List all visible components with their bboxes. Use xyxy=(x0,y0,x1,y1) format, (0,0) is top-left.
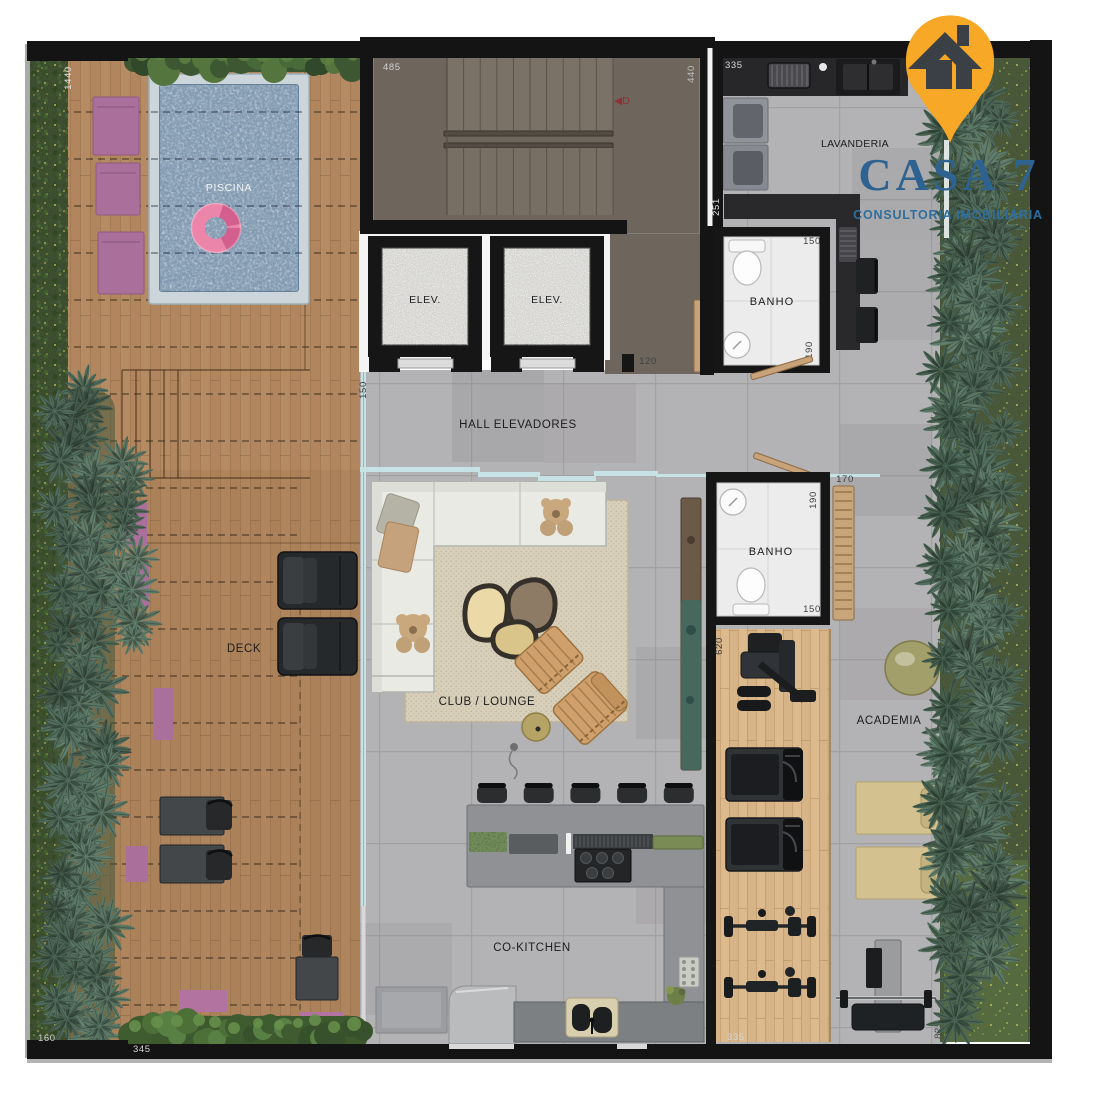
svg-text:HALL ELEVADORES: HALL ELEVADORES xyxy=(459,419,577,431)
svg-text:DECK: DECK xyxy=(227,643,261,655)
svg-text:1440: 1440 xyxy=(63,66,74,90)
svg-text:150: 150 xyxy=(803,236,821,247)
svg-text:160: 160 xyxy=(38,1033,56,1044)
svg-text:PISCINA: PISCINA xyxy=(206,182,252,194)
svg-text:485: 485 xyxy=(383,62,401,73)
svg-text:CO-KITCHEN: CO-KITCHEN xyxy=(493,942,571,954)
svg-text:CLUB / LOUNGE: CLUB / LOUNGE xyxy=(439,696,536,708)
svg-text:120: 120 xyxy=(639,356,657,367)
svg-text:440: 440 xyxy=(686,65,697,83)
svg-text:251: 251 xyxy=(711,198,722,216)
svg-text:BANHO: BANHO xyxy=(750,296,795,308)
svg-text:170: 170 xyxy=(836,474,854,485)
svg-text:150: 150 xyxy=(358,381,369,399)
svg-text:CASA 7: CASA 7 xyxy=(858,149,1039,200)
svg-text:190: 190 xyxy=(808,491,819,509)
svg-text:335: 335 xyxy=(727,1032,745,1043)
svg-text:◀D: ◀D xyxy=(614,95,630,107)
svg-text:ELEV.: ELEV. xyxy=(409,294,441,306)
svg-text:150: 150 xyxy=(803,604,821,615)
svg-text:335: 335 xyxy=(725,60,743,71)
svg-text:ACADEMIA: ACADEMIA xyxy=(857,715,922,727)
svg-text:620: 620 xyxy=(714,637,725,655)
svg-text:ELEV.: ELEV. xyxy=(531,294,563,306)
svg-text:CONSULTORIA IMOBILIÁRIA: CONSULTORIA IMOBILIÁRIA xyxy=(853,207,1043,222)
svg-text:345: 345 xyxy=(133,1044,151,1055)
svg-text:BANHO: BANHO xyxy=(749,546,794,558)
